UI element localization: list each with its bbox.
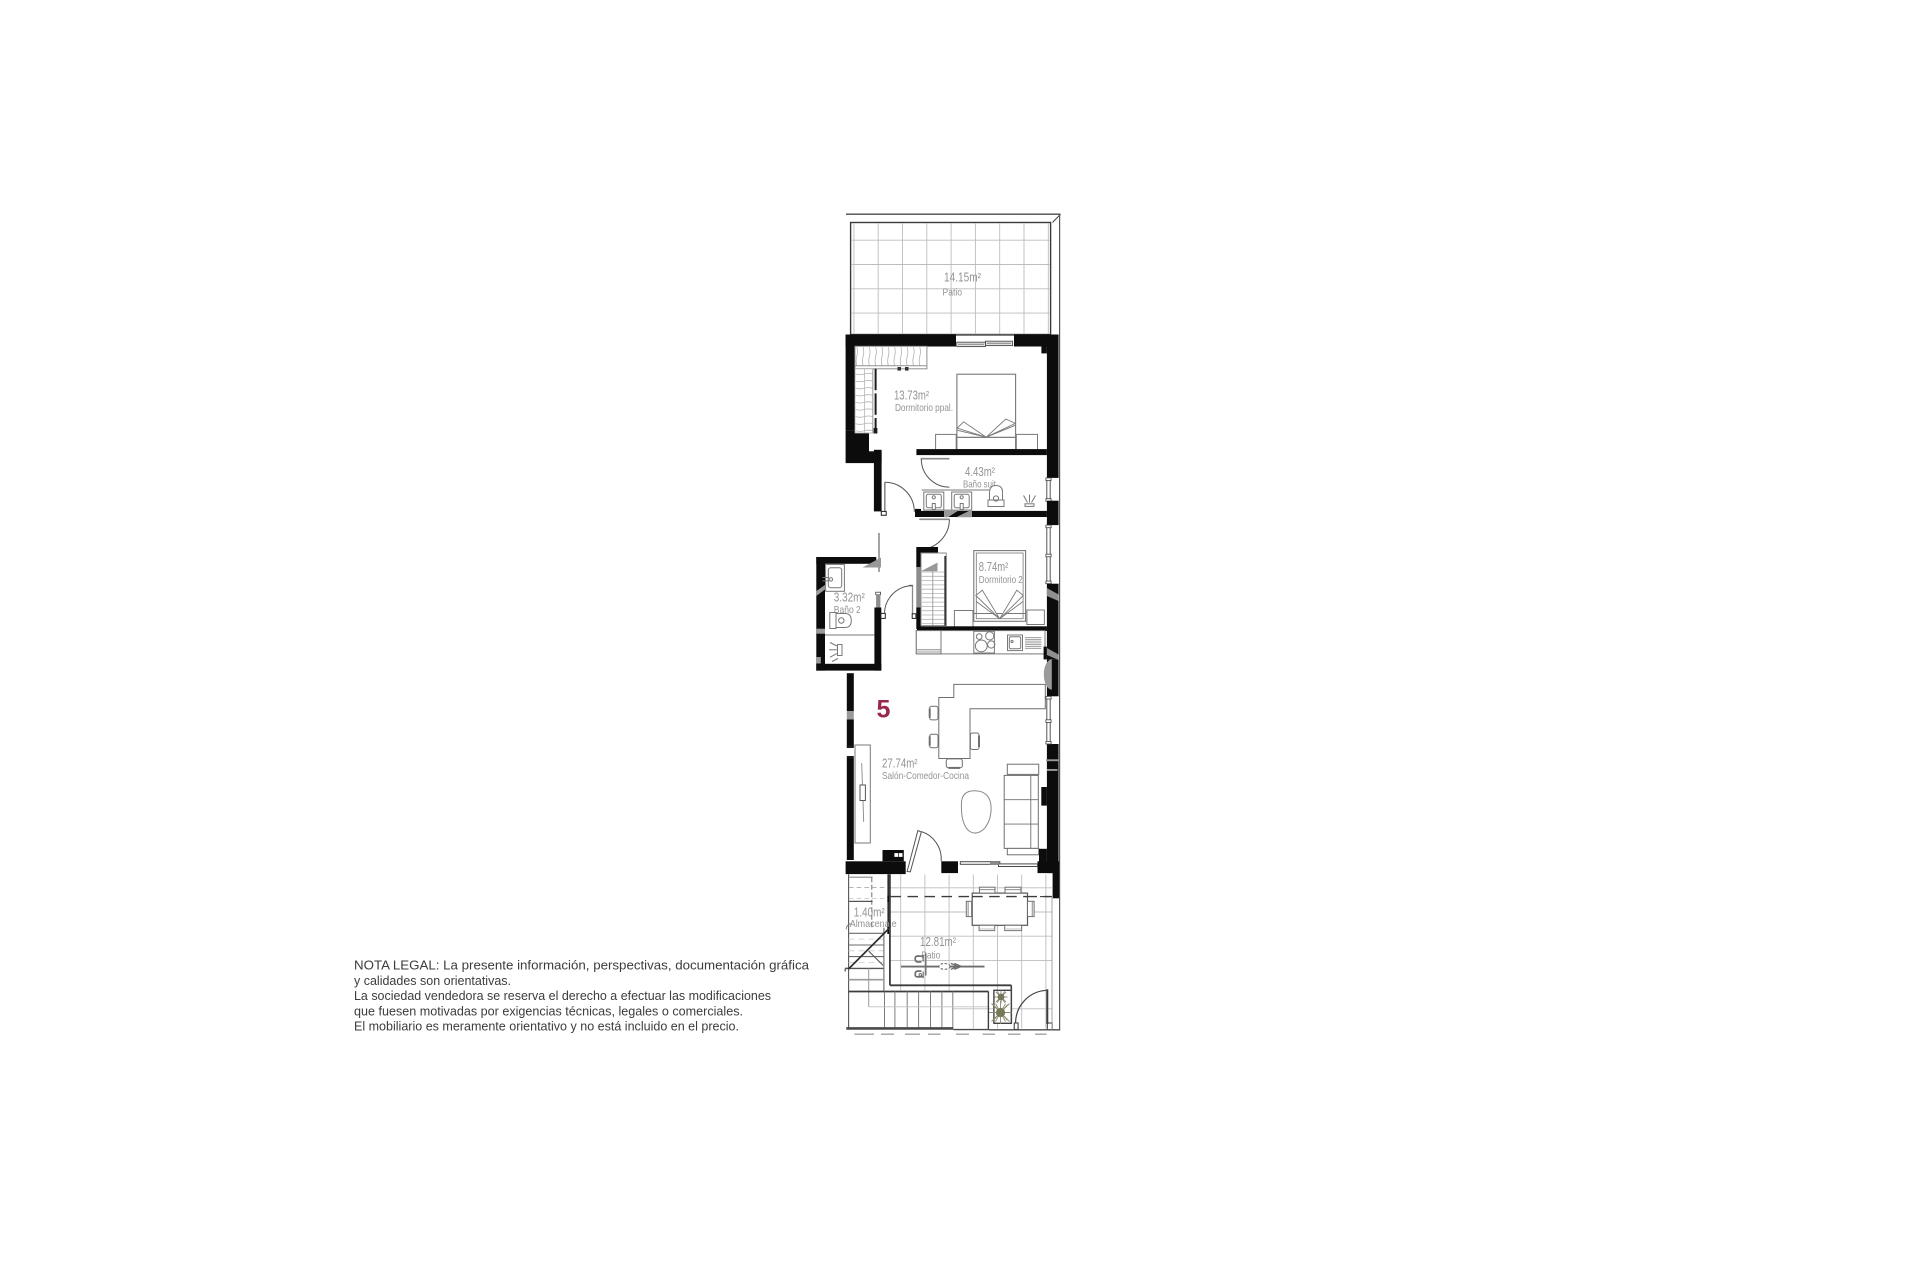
svg-text:5: 5	[877, 696, 891, 724]
svg-text:3.32m²: 3.32m²	[834, 591, 865, 605]
svg-text:y calidades son orientativas.: y calidades son orientativas.	[354, 973, 511, 988]
svg-text:27.74m²: 27.74m²	[882, 756, 918, 770]
svg-text:Salón-Comedor-Cocina: Salón-Comedor-Cocina	[882, 771, 969, 782]
svg-text:Dormitorio ppal.: Dormitorio ppal.	[895, 403, 953, 414]
svg-text:El mobiliario es meramente ori: El mobiliario es meramente orientativo y…	[354, 1019, 739, 1034]
svg-text:La sociedad vendedora se reser: La sociedad vendedora se reserva el dere…	[354, 988, 771, 1003]
svg-text:NOTA LEGAL: La presente inform: NOTA LEGAL: La presente información, per…	[354, 958, 810, 973]
svg-text:12.81m²: 12.81m²	[920, 935, 956, 949]
svg-text:que fuesen motivadas por exige: que fuesen motivadas por exigencias técn…	[354, 1003, 743, 1018]
svg-text:8.74m²: 8.74m²	[979, 560, 1009, 574]
svg-text:1.40m²: 1.40m²	[854, 906, 885, 920]
svg-text:14.15m²: 14.15m²	[944, 271, 981, 285]
svg-text:4.43m²: 4.43m²	[965, 465, 995, 479]
svg-text:Patio: Patio	[921, 951, 940, 962]
svg-text:Dormitorio 2: Dormitorio 2	[979, 575, 1023, 586]
svg-text:Patio: Patio	[943, 287, 963, 298]
svg-text:13.73m²: 13.73m²	[894, 389, 929, 403]
